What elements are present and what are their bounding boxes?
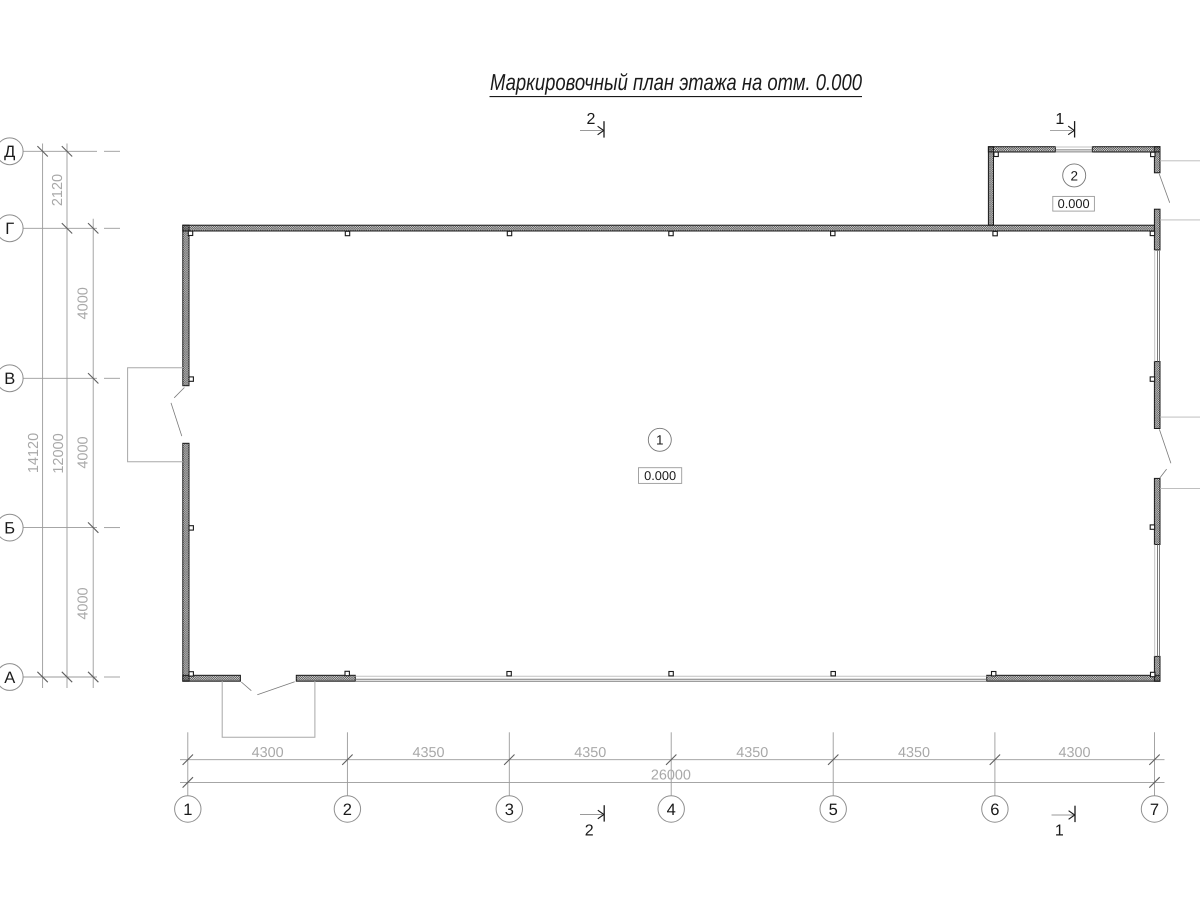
svg-text:4300: 4300 — [252, 745, 284, 761]
svg-text:1: 1 — [1055, 111, 1064, 128]
svg-text:Б: Б — [4, 519, 15, 537]
svg-text:4350: 4350 — [898, 745, 930, 761]
svg-text:1: 1 — [1055, 823, 1064, 840]
svg-text:В: В — [4, 370, 15, 388]
svg-text:Д: Д — [4, 143, 15, 161]
svg-text:2: 2 — [343, 801, 352, 819]
svg-text:4000: 4000 — [75, 587, 91, 619]
svg-text:0.000: 0.000 — [1058, 196, 1090, 211]
svg-text:3: 3 — [505, 801, 514, 819]
svg-text:6: 6 — [990, 801, 999, 819]
svg-text:26000: 26000 — [651, 768, 691, 784]
svg-text:Г: Г — [5, 220, 14, 238]
svg-text:2: 2 — [1070, 168, 1078, 183]
svg-text:4350: 4350 — [412, 745, 444, 761]
svg-text:4350: 4350 — [736, 745, 768, 761]
svg-text:7: 7 — [1150, 801, 1159, 819]
svg-text:4000: 4000 — [75, 436, 91, 468]
svg-text:1: 1 — [183, 801, 192, 819]
svg-text:12000: 12000 — [51, 433, 67, 473]
svg-text:4300: 4300 — [1058, 745, 1090, 761]
svg-text:1: 1 — [656, 433, 664, 448]
svg-text:Маркировочный план этажа на от: Маркировочный план этажа на отм. 0.000 — [490, 69, 862, 95]
svg-text:14120: 14120 — [26, 433, 42, 473]
svg-text:4000: 4000 — [75, 287, 91, 319]
svg-text:2: 2 — [587, 111, 596, 128]
svg-text:2120: 2120 — [50, 174, 66, 206]
svg-text:А: А — [4, 669, 15, 687]
svg-text:0.000: 0.000 — [644, 468, 676, 483]
svg-text:2: 2 — [585, 822, 594, 839]
svg-text:4350: 4350 — [574, 745, 606, 761]
svg-text:4: 4 — [667, 801, 676, 819]
svg-text:5: 5 — [829, 801, 838, 819]
